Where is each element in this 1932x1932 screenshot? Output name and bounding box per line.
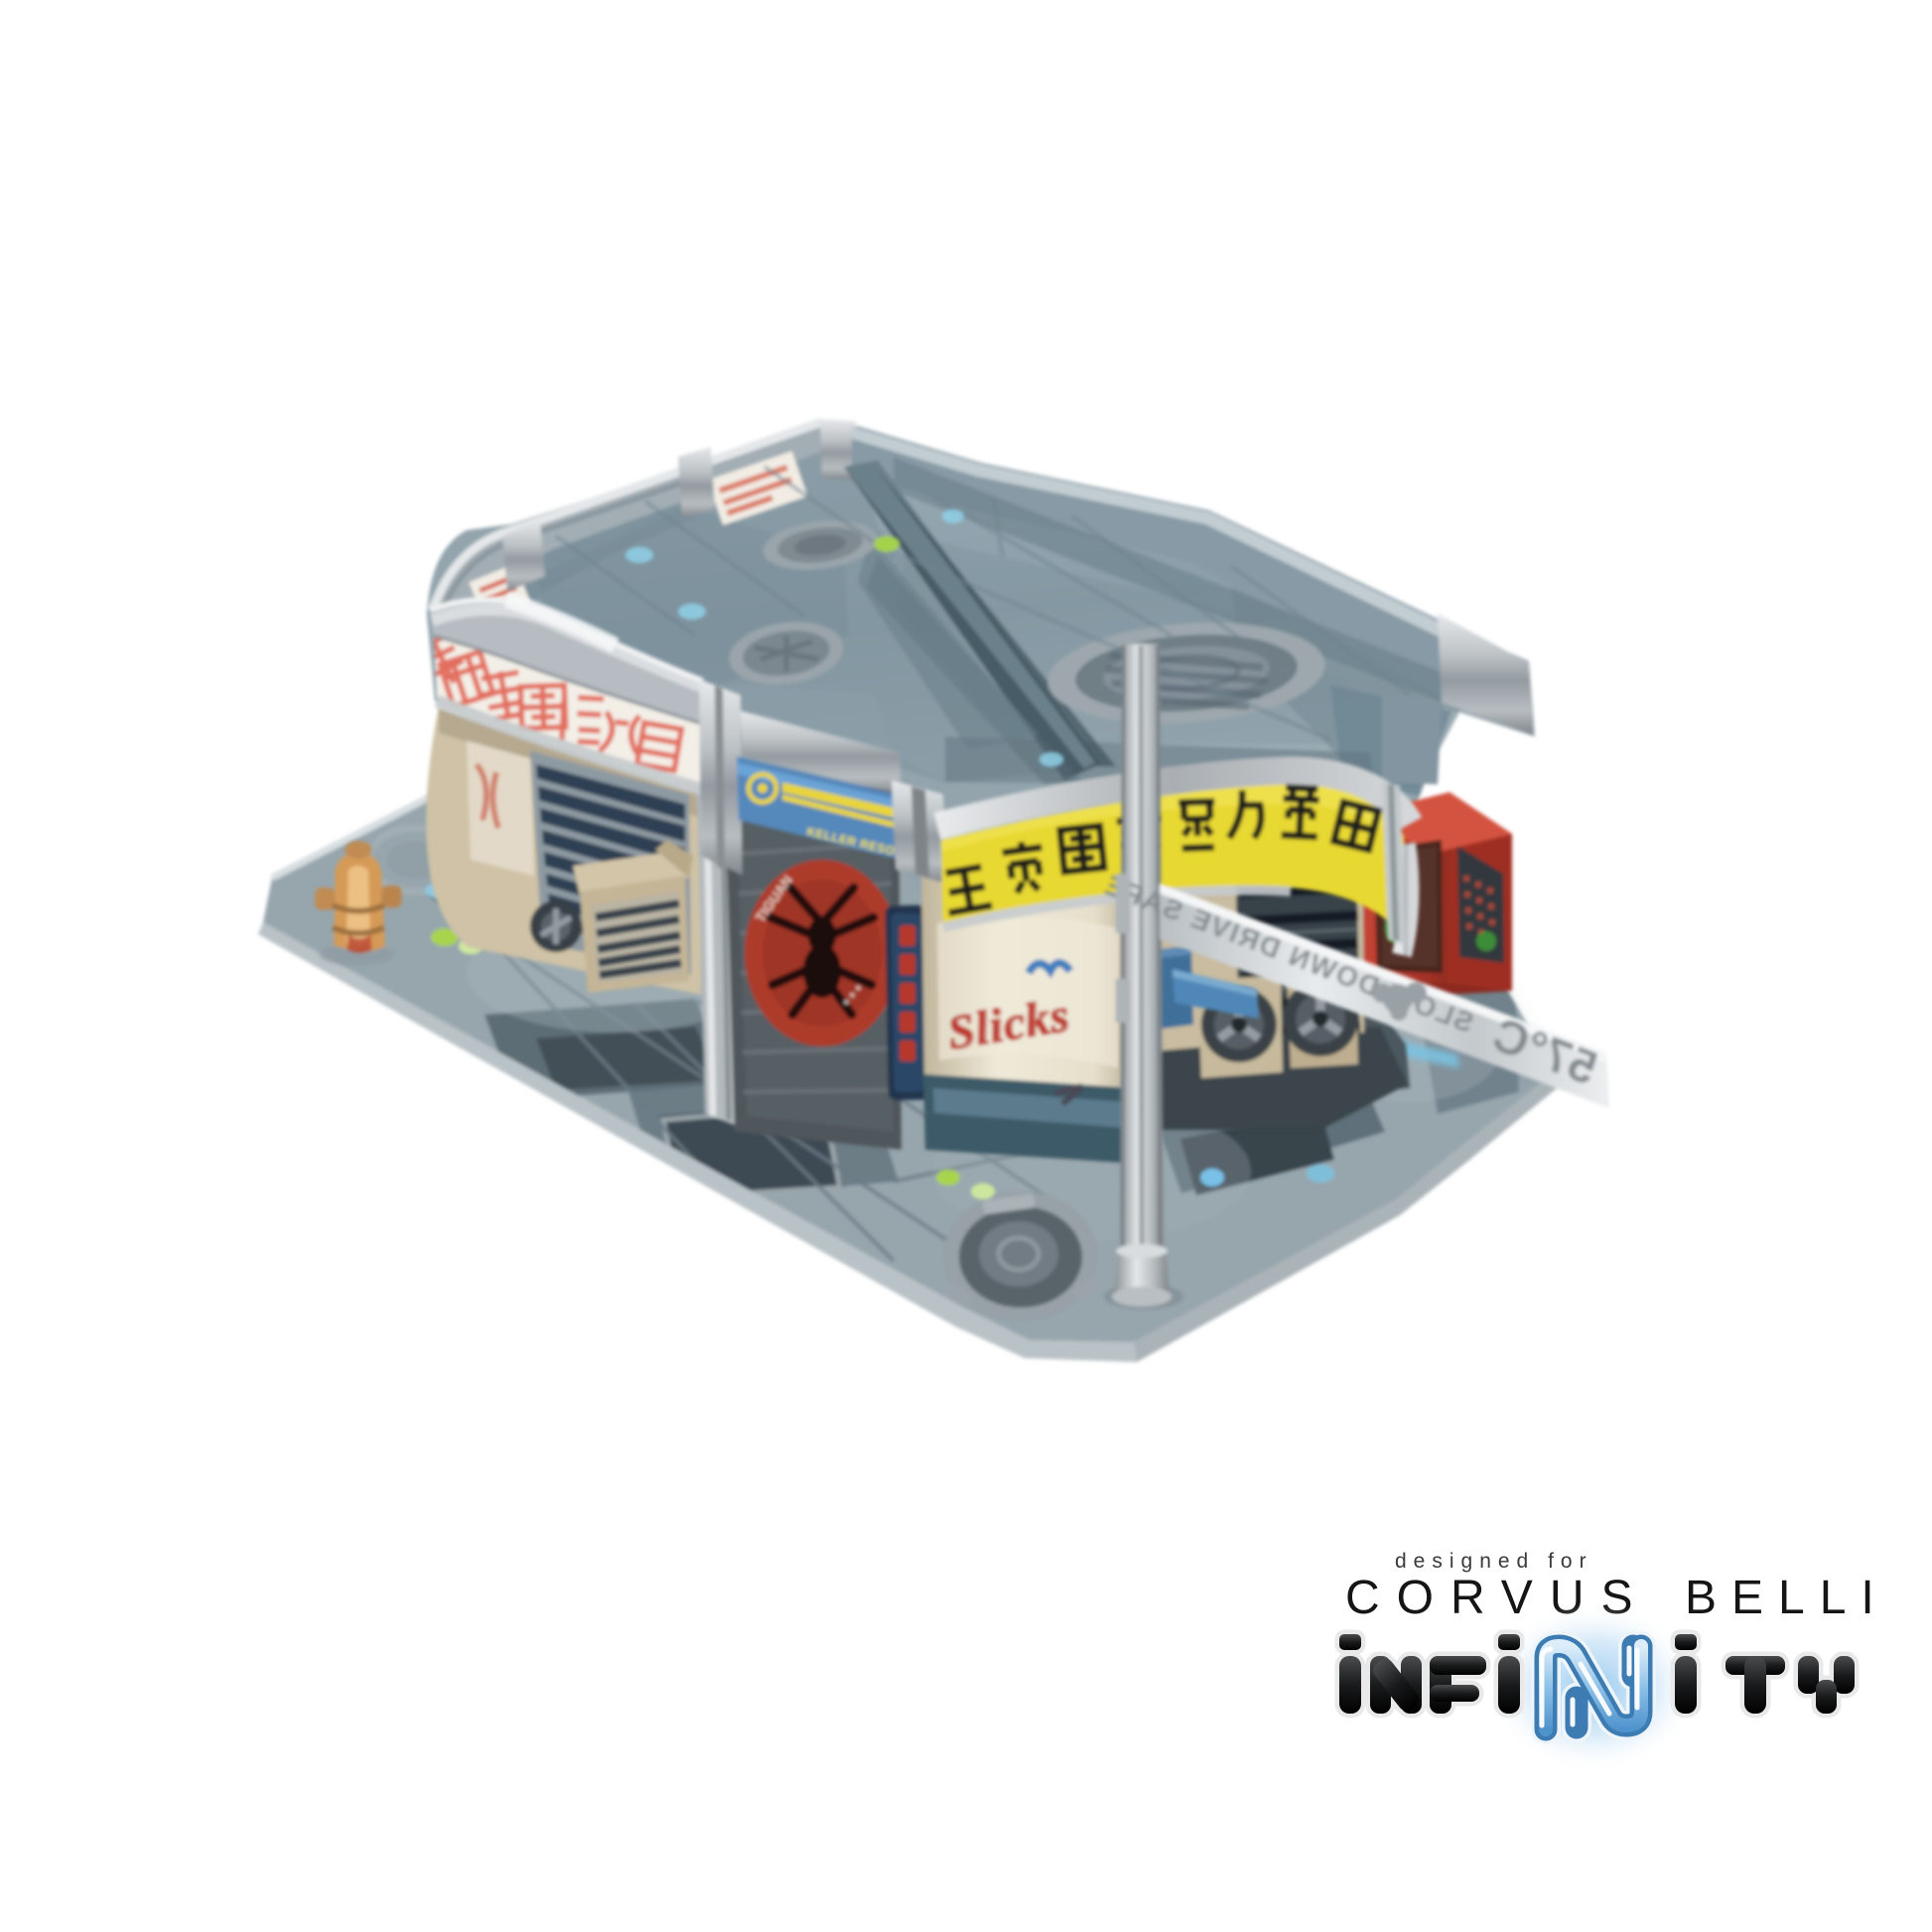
svg-text:designed for: designed for: [1395, 1550, 1593, 1573]
svg-text:BELLI: BELLI: [1685, 1572, 1889, 1624]
